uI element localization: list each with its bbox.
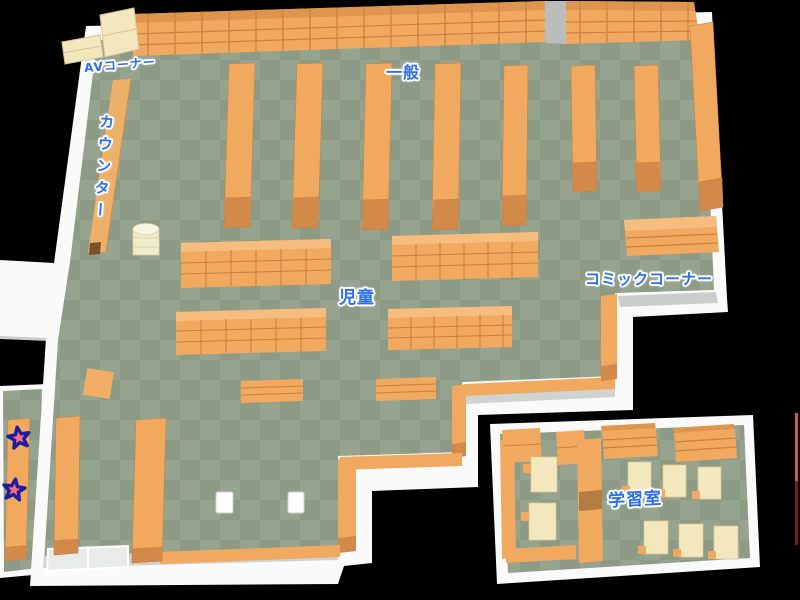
edge-red-line xyxy=(795,413,798,545)
floor-map-canvas xyxy=(0,0,800,600)
comic-shelf xyxy=(624,216,719,256)
study-desk xyxy=(531,457,557,492)
study-desk xyxy=(529,503,556,540)
study-desk xyxy=(714,526,738,559)
bench xyxy=(376,377,436,401)
area-label-children: 児童 xyxy=(339,283,375,308)
area-label-general: 一般 xyxy=(386,59,420,83)
white-table xyxy=(288,492,304,513)
kiosk-cylinder xyxy=(133,224,159,256)
area-label-comic-corner: コミックコーナー xyxy=(585,268,713,289)
study-partition xyxy=(577,438,603,563)
study-desk xyxy=(698,467,721,499)
area-label-study-room: 学習室 xyxy=(607,484,662,512)
study-desk xyxy=(644,521,668,554)
library-floor-map: AVコーナー 一般 カウンター 児童 コミックコーナー 学習室 xyxy=(0,0,800,600)
white-table xyxy=(216,492,233,513)
floor-mat xyxy=(83,368,114,399)
bench xyxy=(241,379,303,403)
study-desk xyxy=(663,465,686,497)
study-desk xyxy=(679,524,703,557)
